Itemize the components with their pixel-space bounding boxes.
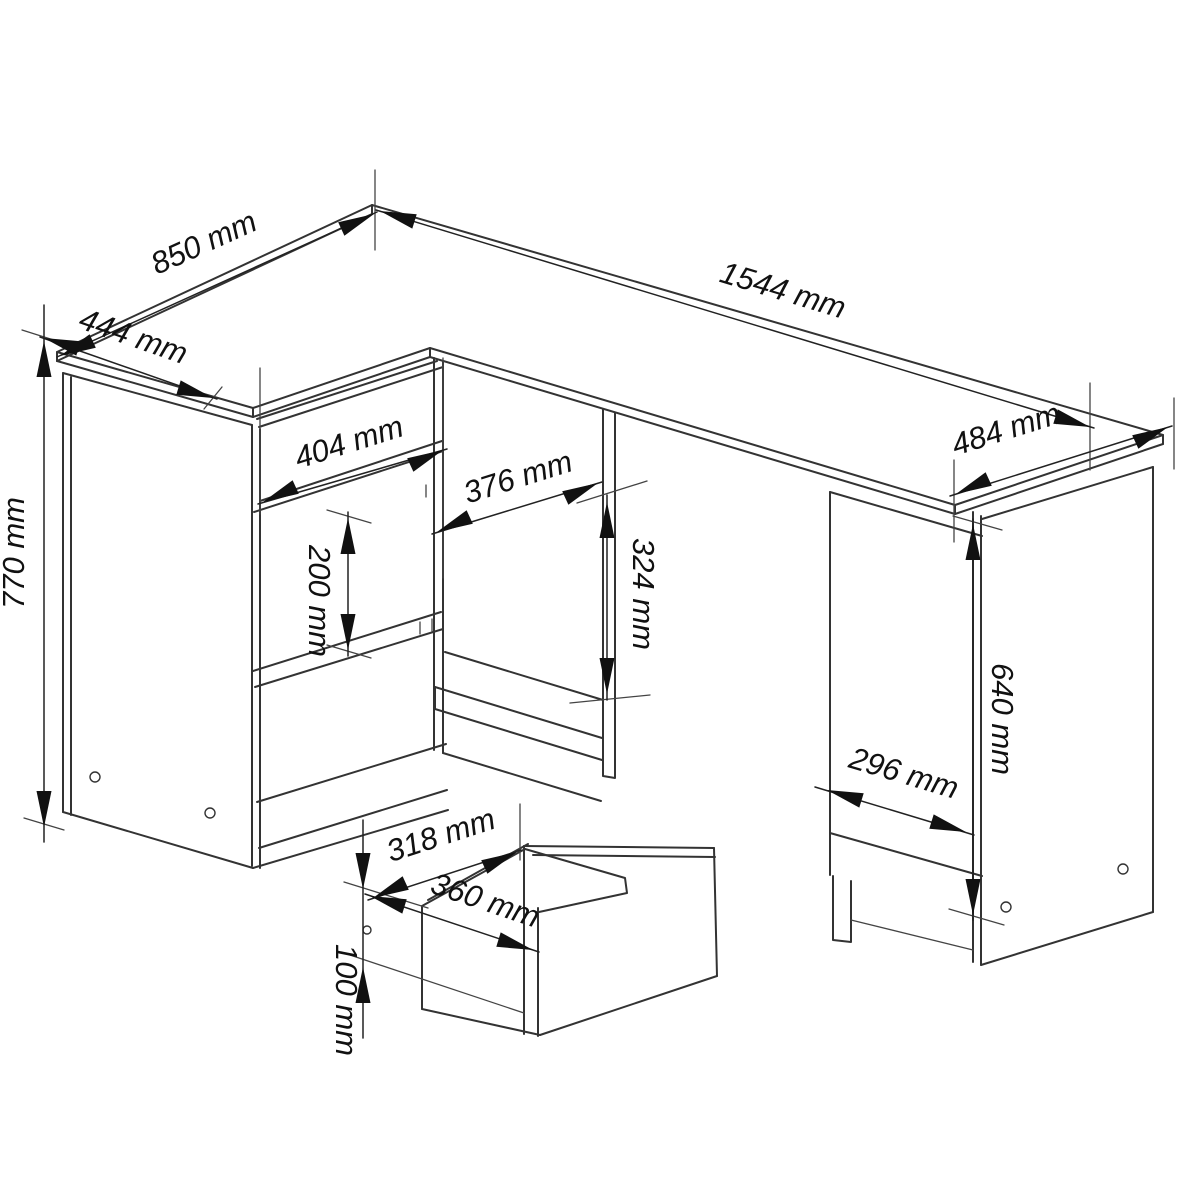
desk-dimension-diagram: 850 mm 444 mm 1544 mm 484 mm 404 mm 376 … (0, 0, 1200, 1200)
screw-hole (205, 808, 215, 818)
dim-label-444: 444 mm (75, 301, 192, 371)
screw-hole (1118, 864, 1128, 874)
dim-label-850: 850 mm (145, 203, 261, 281)
dim-label-484: 484 mm (947, 396, 1064, 463)
technical-drawing-page: 850 mm 444 mm 1544 mm 484 mm 404 mm 376 … (0, 0, 1200, 1200)
dim-label-100: 100 mm (329, 944, 364, 1056)
dim-label-1544: 1544 mm (716, 255, 850, 326)
dim-label-376: 376 mm (459, 444, 576, 511)
dim-label-770: 770 mm (0, 497, 31, 609)
dim-label-324: 324 mm (626, 538, 661, 650)
screw-hole (1001, 902, 1011, 912)
drawer-detail-inset (363, 844, 717, 1036)
dim-label-200: 200 mm (302, 544, 337, 657)
screw-hole (90, 772, 100, 782)
dim-label-360: 360 mm (427, 866, 544, 935)
dimension-lines (40, 210, 1172, 1038)
dimension-labels: 850 mm 444 mm 1544 mm 484 mm 404 mm 376 … (0, 203, 1065, 1056)
pilot-hole (363, 926, 371, 934)
dim-label-640: 640 mm (985, 663, 1020, 775)
